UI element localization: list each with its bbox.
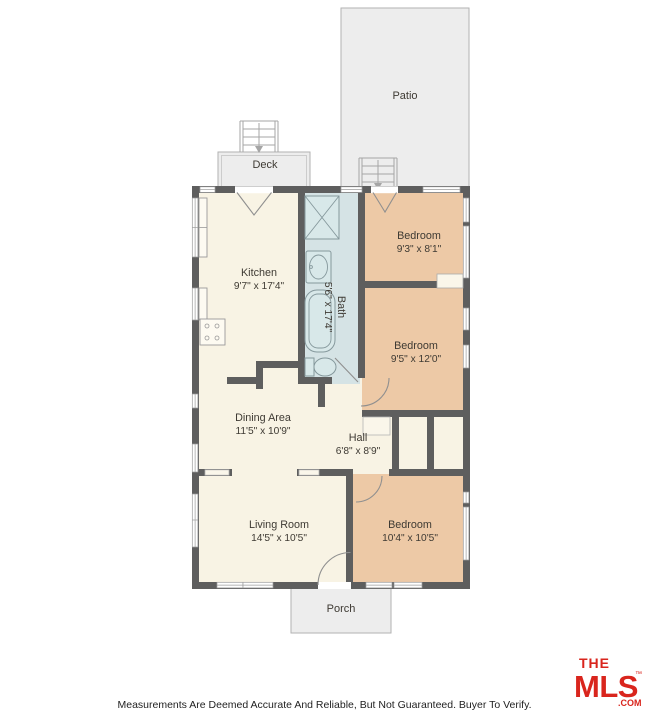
wall-segment — [298, 377, 332, 384]
cased-opening — [205, 470, 229, 475]
bedroom1-label: Bedroom — [397, 230, 441, 242]
window — [200, 187, 215, 193]
kitchen-dims: 9'7" x 17'4" — [234, 281, 285, 292]
toilet — [305, 358, 336, 376]
wall-segment — [346, 469, 353, 583]
dining-label: Dining Area — [235, 412, 291, 424]
dining-dims: 11'5" x 10'9" — [235, 426, 290, 437]
wall-segment — [392, 417, 399, 472]
window — [192, 394, 198, 408]
window — [192, 198, 198, 257]
wall-segment — [256, 361, 263, 389]
patio-area: Patio — [341, 8, 469, 192]
window — [192, 494, 198, 547]
bath-dims: 5'6" x 17'4" — [322, 282, 333, 333]
window — [463, 492, 469, 503]
porch-area: Porch — [291, 585, 391, 633]
window — [463, 308, 469, 330]
bedroom2-dims: 9'5" x 12'0" — [391, 354, 442, 365]
porch-label: Porch — [327, 603, 356, 615]
door-opening — [235, 186, 273, 193]
window — [341, 187, 362, 193]
floor-plan: Patio Deck Porch — [0, 0, 649, 720]
wall-segment — [358, 281, 439, 288]
disclaimer-text: Measurements Are Deemed Accurate And Rel… — [0, 699, 649, 711]
floor-plan-page: Patio Deck Porch — [0, 0, 649, 720]
bath-label: Bath — [335, 296, 347, 318]
logo-tm: ™ — [635, 671, 642, 678]
wall-segment — [256, 361, 304, 368]
wall-segment — [318, 384, 325, 407]
stove — [200, 319, 225, 345]
window — [192, 444, 198, 472]
door-opening — [371, 186, 398, 193]
hall-dims: 6'8" x 8'9" — [336, 446, 381, 457]
cased-opening — [299, 470, 319, 475]
wall-segment — [427, 417, 434, 472]
window — [423, 187, 460, 193]
kitchen-label: Kitchen — [241, 267, 277, 279]
wall-segment — [362, 410, 463, 417]
patio-label: Patio — [392, 90, 417, 102]
window — [463, 198, 469, 222]
bedroom3-label: Bedroom — [388, 519, 432, 531]
wall-segment — [389, 469, 463, 476]
wall-segment — [227, 377, 258, 384]
wall-segment — [298, 192, 305, 383]
window — [463, 507, 469, 560]
window — [366, 582, 392, 588]
closet-notch — [437, 274, 463, 288]
door-opening — [318, 582, 351, 589]
sink — [306, 251, 331, 283]
bedroom2-label: Bedroom — [394, 340, 438, 352]
washer-box — [305, 196, 339, 239]
window — [192, 288, 198, 320]
window — [463, 226, 469, 278]
window — [394, 582, 422, 588]
hall-label: Hall — [349, 432, 368, 444]
living-dims: 14'5" x 10'5" — [251, 533, 307, 544]
living-label: Living Room — [249, 519, 309, 531]
deck-stairs — [240, 121, 278, 153]
bedroom3-dims: 10'4" x 10'5" — [382, 533, 438, 544]
bedroom1-dims: 9'3" x 8'1" — [397, 244, 442, 255]
deck-label: Deck — [252, 159, 278, 171]
window — [243, 582, 273, 588]
window — [217, 582, 243, 588]
window — [463, 345, 469, 368]
